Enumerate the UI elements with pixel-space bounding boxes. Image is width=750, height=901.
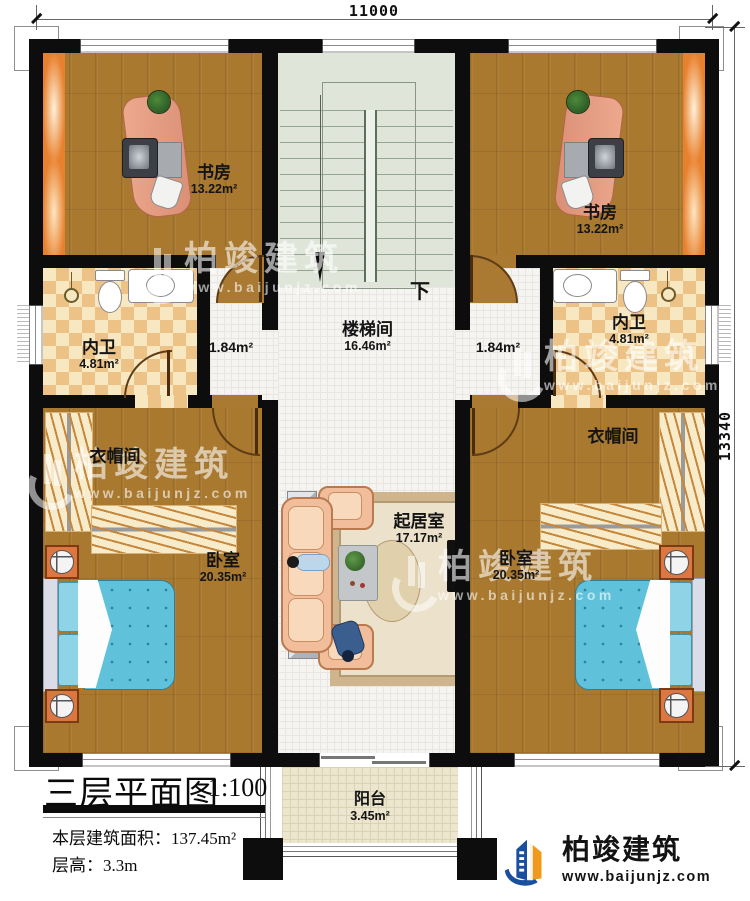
closet-rack-right-horizontal — [540, 503, 662, 550]
nightstand-left-bottom — [45, 689, 79, 723]
lamp-icon — [664, 693, 689, 718]
sofa-cushion-3 — [288, 598, 324, 642]
stair-direction-line — [320, 95, 321, 252]
room-label-bedroom-left: 卧室 20.35m² — [185, 551, 261, 584]
stair-direction-label: 下 — [405, 281, 435, 303]
closet-rack-left-horizontal — [91, 505, 237, 554]
room-label-stairwell: 楼梯间 16.46m² — [330, 320, 405, 353]
door-opening-bedroom-left — [212, 395, 258, 408]
room-label-corridor-left: 1.84m² — [195, 340, 267, 356]
sofa-cushion-1 — [288, 506, 324, 550]
sliding-door-leaf-1 — [321, 756, 375, 759]
coffee-table-plant — [345, 551, 365, 571]
wall-stair-right — [455, 39, 470, 330]
wall-stair-left — [262, 39, 278, 330]
balcony-column-right — [457, 838, 497, 880]
door-leaf-study-right — [470, 255, 473, 302]
cabinet-glow-left-study — [43, 53, 65, 268]
room-label-bath-right: 内卫 4.81m² — [591, 313, 667, 346]
title-underline-thin — [43, 817, 265, 818]
shower-head-left — [64, 288, 79, 303]
company-name: 柏竣建筑 — [562, 836, 711, 864]
person-on-sofa-head — [287, 556, 299, 568]
dimension-ext-right-bottom — [705, 766, 745, 767]
stair-handrail — [364, 110, 377, 282]
room-label-living: 起居室 17.17m² — [383, 512, 455, 545]
title-underline-thick — [43, 805, 265, 813]
balcony-column-left — [243, 838, 283, 880]
lamp-icon — [50, 694, 74, 718]
door-leaf-study-left — [259, 255, 262, 302]
shower-head-right — [661, 287, 676, 302]
door-leaf-bedroom-left — [255, 408, 258, 454]
sink-right — [563, 274, 592, 297]
room-label-closet-left: 衣帽间 — [84, 447, 146, 466]
dimension-width-label: 11000 — [339, 2, 409, 20]
room-label-bedroom-right: 卧室 20.35m² — [478, 549, 554, 582]
window-left-bath — [29, 305, 43, 365]
coffee-cup-1 — [350, 581, 355, 586]
dimension-ext-right-top — [705, 27, 745, 28]
company-logo-text: 柏竣建筑 www.baijunjz.com — [562, 836, 711, 885]
wall-bath-right-west — [540, 268, 553, 408]
window-right-bath — [705, 305, 719, 365]
bed-headboard-left — [43, 578, 58, 692]
window-bottom-left-bedroom — [82, 753, 231, 767]
closet-rack-left-vertical — [45, 412, 93, 532]
door-opening-bedroom-right — [472, 395, 518, 408]
door-leaf-bedroom-right — [472, 408, 475, 454]
closet-rack-right-vertical — [659, 412, 707, 532]
door-leaf-bath-left — [167, 350, 170, 396]
person-on-armchair-head — [342, 650, 354, 662]
room-label-closet-right: 衣帽间 — [582, 427, 644, 446]
dimension-height-label: 13340 — [716, 401, 734, 471]
room-label-balcony: 阳台 3.45m² — [334, 791, 406, 823]
wall-living-left — [262, 400, 278, 753]
toilet-bowl-left — [98, 281, 122, 313]
floor-area-text: 本层建筑面积：137.45m² — [52, 824, 236, 849]
toilet-tank-right — [620, 270, 650, 281]
monitor-screen-left — [129, 145, 149, 169]
sliding-door-leaf-2 — [372, 761, 426, 764]
coffee-cup-2 — [360, 583, 365, 588]
floor-plan-page: 柏竣建筑www.baijunjz.com 柏竣建筑www.baijunjz.co… — [0, 0, 750, 901]
dimension-line-right — [734, 27, 735, 767]
window-top-left — [80, 39, 229, 53]
wall-bath-left-east — [197, 268, 210, 408]
window-sill-right — [719, 305, 731, 363]
lamp-icon — [664, 550, 689, 575]
company-logo-icon — [498, 830, 556, 890]
armchair-top-cushion — [328, 492, 362, 520]
wall-exterior-left — [29, 39, 43, 767]
nightstand-right-bottom — [659, 688, 694, 723]
room-label-study-left: 书房 13.22m² — [176, 163, 252, 196]
nightstand-left-top — [45, 545, 79, 579]
lamp-icon — [50, 550, 74, 574]
window-bottom-right-bedroom — [514, 753, 660, 767]
wall-living-right — [455, 400, 470, 753]
toilet-bowl-right — [623, 281, 647, 313]
floor-height-text: 层高：3.3m — [52, 851, 137, 876]
stair-down-arrow-icon — [315, 252, 325, 282]
room-label-bath-left: 内卫 4.81m² — [61, 338, 137, 371]
person-on-sofa — [296, 554, 330, 571]
room-label-study-right: 书房 13.22m² — [562, 203, 638, 236]
window-sill-left — [17, 305, 29, 363]
toilet-tank-left — [95, 270, 125, 281]
nightstand-right-top — [659, 545, 694, 580]
door-leaf-bath-right — [553, 350, 556, 396]
room-label-corridor-right: 1.84m² — [462, 340, 534, 356]
window-top-stair — [322, 39, 415, 53]
plan-scale: 1:100 — [208, 773, 267, 803]
sink-left — [146, 274, 175, 297]
monitor-screen-right — [595, 145, 615, 169]
plant-right — [567, 91, 589, 113]
cabinet-glow-right-study — [683, 53, 705, 268]
window-top-right — [508, 39, 657, 53]
company-logo: 柏竣建筑 www.baijunjz.com — [498, 828, 746, 892]
company-website: www.baijunjz.com — [562, 870, 711, 885]
plant-left — [148, 91, 170, 113]
